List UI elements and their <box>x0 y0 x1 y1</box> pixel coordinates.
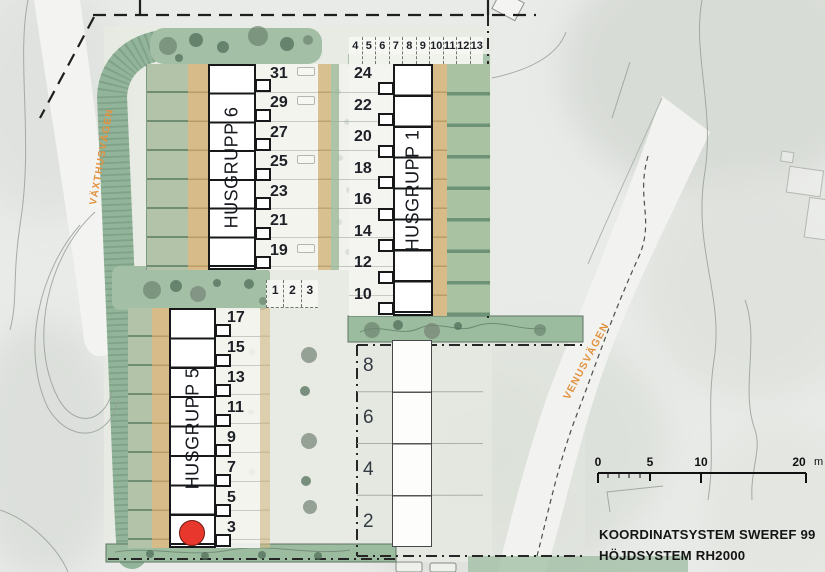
g1-parking-stalls: 4 5 6 7 8 9 10 11 12 13 <box>349 37 483 64</box>
future-unit-list: 8 6 4 2 <box>357 340 391 547</box>
g6-patio-strip <box>188 64 208 270</box>
unit-number: 20 <box>349 127 393 145</box>
aerial-wash <box>0 320 120 572</box>
unit-row: 22 <box>349 96 393 128</box>
g1-patio-strip <box>433 64 447 316</box>
entrance-porch <box>378 302 394 315</box>
parking-stall: 9 <box>417 37 431 64</box>
path-squiggle <box>115 548 350 553</box>
stall-number: 8 <box>406 37 412 52</box>
entrance-porch <box>378 239 394 252</box>
unit-row: 18 <box>349 159 393 191</box>
unit-row: 6 <box>357 392 391 444</box>
parking-stall: 2 <box>284 280 301 307</box>
entrance-porch <box>255 168 271 181</box>
g1-forecourt: 24 22 20 18 16 14 12 <box>349 64 393 316</box>
unit-row: 13 <box>216 368 260 398</box>
parking-stall: 13 <box>471 37 484 64</box>
unit-row: 17 <box>216 308 260 338</box>
car-icon <box>297 155 315 164</box>
unit-row: 4 <box>357 444 391 496</box>
unit-row: 16 <box>349 190 393 222</box>
unit-row: 10 <box>349 285 393 317</box>
entrance-porch <box>378 82 394 95</box>
parking-stall: 11 <box>444 37 458 64</box>
scale-label-10: 10 <box>694 455 707 469</box>
unit-row: 12 <box>349 253 393 285</box>
g1-label: HUSGRUPP 1 <box>403 129 424 251</box>
entrance-porch <box>215 384 231 397</box>
unit-row: 9 <box>216 428 260 458</box>
stall-number: 12 <box>457 37 469 52</box>
g6-building: HUSGRUPP 6 <box>208 64 256 270</box>
g6-forecourt: 31 29 27 25 23 <box>256 64 318 270</box>
parking-stall: 1 <box>267 280 284 307</box>
unit-row: 23 <box>256 182 318 211</box>
entrance-porch <box>255 109 271 122</box>
parking-stall: 4 <box>349 37 363 64</box>
stall-number: 1 <box>272 280 279 297</box>
stall-number: 11 <box>444 37 456 52</box>
unit-row: 3 <box>216 518 260 548</box>
unit-row: 21 <box>256 211 318 240</box>
scale-label-20: 20 <box>792 455 805 469</box>
unit-number: 14 <box>349 222 393 240</box>
site-plan-canvas: HUSGRUPP 6 31 29 27 25 <box>0 0 825 572</box>
entrance-porch <box>215 414 231 427</box>
unit-row: 2 <box>357 495 391 547</box>
unit-number: 4 <box>357 460 374 479</box>
future-building <box>392 340 432 547</box>
g6-gardens <box>146 64 188 270</box>
entrance-porch <box>215 444 231 457</box>
stall-number: 2 <box>289 280 296 297</box>
parking-stall: 12 <box>457 37 471 64</box>
unit-row: 31 <box>256 64 318 93</box>
stall-number: 10 <box>430 37 442 52</box>
future-unit-numbers: 8 6 4 2 <box>357 340 391 547</box>
path-squiggle <box>360 323 545 332</box>
parking-stall: 10 <box>430 37 444 64</box>
parking-stall: 3 <box>302 280 318 307</box>
g5-gardens <box>128 308 152 548</box>
unit-number: 18 <box>349 159 393 177</box>
unit-row: 19 <box>256 241 318 270</box>
parking-stall: 7 <box>390 37 404 64</box>
g5-label: HUSGRUPP 5 <box>182 367 203 489</box>
g5-forecourt: 17 15 13 11 9 7 5 <box>216 308 260 548</box>
parking-stall: 8 <box>403 37 417 64</box>
stall-number: 6 <box>379 37 385 52</box>
parking-stall: 5 <box>363 37 377 64</box>
entrance-porch <box>378 271 394 284</box>
g6-label: HUSGRUPP 6 <box>222 106 243 228</box>
visitor-parking-stalls: 1 2 3 <box>267 280 318 307</box>
parking-stall: 6 <box>376 37 390 64</box>
unit-row: 11 <box>216 398 260 428</box>
entrance-porch <box>255 79 271 92</box>
unit-number: 8 <box>357 356 374 375</box>
scale-label-5: 5 <box>647 455 654 469</box>
unit-row: 24 <box>349 64 393 96</box>
stall-number: 13 <box>471 37 483 52</box>
green-common-area <box>112 266 270 310</box>
unit-row: 15 <box>216 338 260 368</box>
unit-number: 12 <box>349 253 393 271</box>
neighbor-building <box>492 0 524 21</box>
g5-building: HUSGRUPP 5 <box>169 308 216 548</box>
entrance-porch <box>215 474 231 487</box>
stall-number: 9 <box>420 37 426 52</box>
car-icon <box>297 67 315 76</box>
unit-number: 2 <box>357 512 374 531</box>
scale-unit: m <box>814 456 823 468</box>
entrance-porch <box>215 504 231 517</box>
entrance-porch <box>215 324 231 337</box>
unit-number: 22 <box>349 96 393 114</box>
green-strip-top <box>150 28 322 64</box>
unit-row: 20 <box>349 127 393 159</box>
aerial-wash <box>560 0 825 200</box>
unit-row: 27 <box>256 123 318 152</box>
entrance-porch <box>378 176 394 189</box>
entrance-porch <box>215 534 231 547</box>
unit-number: 10 <box>349 285 393 303</box>
stall-number: 4 <box>352 37 358 52</box>
stall-number: 5 <box>366 37 372 52</box>
entrance-porch <box>378 145 394 158</box>
entrance-porch <box>255 138 271 151</box>
unit-number: 24 <box>349 64 393 82</box>
unit-row: 14 <box>349 222 393 254</box>
unit-number: 16 <box>349 190 393 208</box>
g1-parking-row: 4 5 6 7 8 9 10 11 12 13 <box>349 37 483 64</box>
g1-unit-list: 24 22 20 18 16 14 12 <box>349 64 393 316</box>
car-icon <box>297 96 315 105</box>
car-icon <box>297 244 315 253</box>
height-system-text: HÖJDSYSTEM RH2000 <box>599 545 816 566</box>
g1-building: HUSGRUPP 1 <box>393 64 433 316</box>
stall-number: 3 <box>306 280 313 297</box>
unit-row: 29 <box>256 93 318 122</box>
entrance-porch <box>255 197 271 210</box>
g6-patio-strip <box>318 64 331 270</box>
unit-number: 6 <box>357 408 374 427</box>
entrance-porch <box>255 256 271 269</box>
g5-patio-strip <box>260 308 270 548</box>
g6-unit-list: 31 29 27 25 23 <box>256 64 318 270</box>
entrance-porch <box>378 113 394 126</box>
reference-systems: KOORDINATSYSTEM SWEREF 99 HÖJDSYSTEM RH2… <box>599 524 816 566</box>
aerial-wash <box>640 170 825 400</box>
g5-patio-strip <box>152 308 169 548</box>
red-dot-marker[interactable] <box>179 520 205 546</box>
entrance-porch <box>255 227 271 240</box>
entrance-porch <box>215 354 231 367</box>
g5-unit-list: 17 15 13 11 9 7 5 <box>216 308 260 548</box>
stall-number: 7 <box>393 37 399 52</box>
g1-gardens <box>447 64 490 316</box>
scale-label-0: 0 <box>595 455 602 469</box>
unit-row: 7 <box>216 458 260 488</box>
unit-row: 8 <box>357 340 391 392</box>
coordinate-system-text: KOORDINATSYSTEM SWEREF 99 <box>599 524 816 545</box>
unit-row: 25 <box>256 152 318 181</box>
unit-row: 5 <box>216 488 260 518</box>
entrance-porch <box>378 208 394 221</box>
visitor-parking: 1 2 3 <box>266 280 318 308</box>
